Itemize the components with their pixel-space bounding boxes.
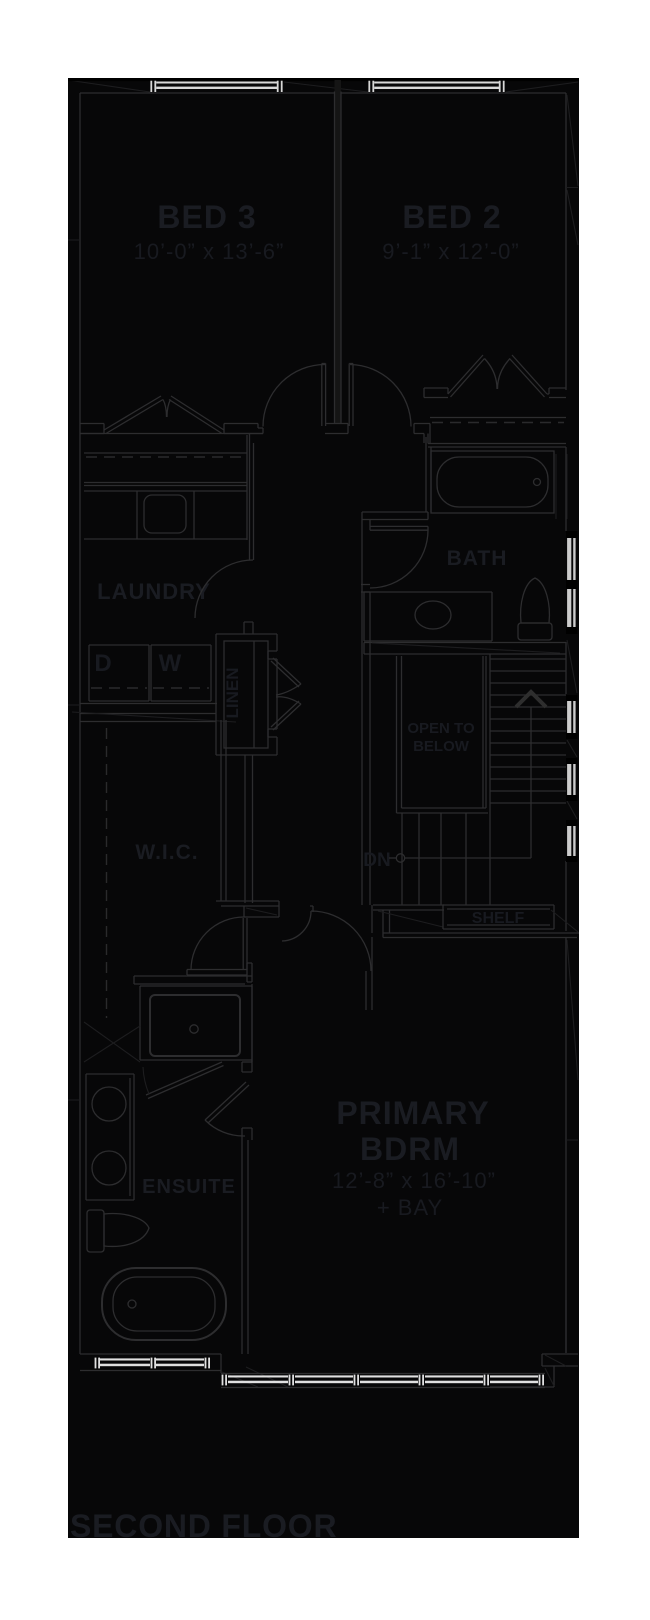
svg-text:W: W xyxy=(159,650,182,677)
svg-text:SHELF: SHELF xyxy=(472,910,525,927)
svg-text:W.I.C.: W.I.C. xyxy=(135,841,198,864)
svg-text:ENSUITE: ENSUITE xyxy=(142,1176,236,1198)
svg-text:BED 3: BED 3 xyxy=(157,199,256,235)
svg-text:BDRM: BDRM xyxy=(360,1131,460,1167)
svg-text:BELOW: BELOW xyxy=(413,738,470,755)
svg-text:LINEN: LINEN xyxy=(223,668,242,719)
svg-text:+ BAY: + BAY xyxy=(377,1195,443,1220)
svg-text:LAUNDRY: LAUNDRY xyxy=(97,579,211,604)
svg-text:DN: DN xyxy=(363,850,390,871)
svg-text:OPEN TO: OPEN TO xyxy=(407,720,475,737)
svg-text:10’-0” x 13’-6”: 10’-0” x 13’-6” xyxy=(134,239,285,264)
svg-text:PRIMARY: PRIMARY xyxy=(336,1095,489,1131)
svg-text:BATH: BATH xyxy=(447,547,508,570)
svg-text:D: D xyxy=(94,650,111,677)
svg-text:BED 2: BED 2 xyxy=(402,199,501,235)
svg-text:12’-8” x 16’-10”: 12’-8” x 16’-10” xyxy=(332,1168,496,1193)
svg-text:9’-1” x 12’-0”: 9’-1” x 12’-0” xyxy=(382,239,519,264)
svg-text:SECOND FLOOR: SECOND FLOOR xyxy=(70,1508,337,1544)
